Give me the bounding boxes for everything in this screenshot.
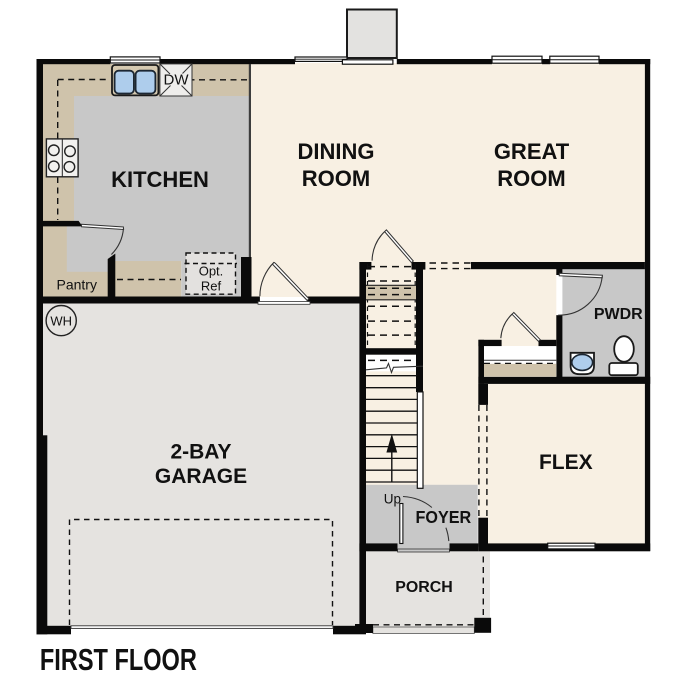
svg-text:FIRST FLOOR: FIRST FLOOR: [40, 642, 197, 677]
svg-text:PORCH: PORCH: [395, 579, 453, 596]
svg-text:FLEX: FLEX: [539, 451, 593, 474]
svg-text:FOYER: FOYER: [416, 507, 472, 527]
svg-text:PWDR: PWDR: [594, 306, 643, 323]
svg-text:Ref: Ref: [201, 279, 222, 294]
svg-text:Up: Up: [384, 491, 401, 506]
svg-text:ROOM: ROOM: [497, 166, 565, 191]
svg-text:DW: DW: [164, 71, 190, 88]
svg-text:WH: WH: [50, 313, 72, 328]
svg-text:KITCHEN: KITCHEN: [111, 167, 209, 192]
svg-text:ROOM: ROOM: [302, 166, 370, 191]
svg-text:GREAT: GREAT: [494, 139, 570, 164]
svg-text:2-BAY: 2-BAY: [170, 441, 231, 464]
svg-text:Opt.: Opt.: [199, 264, 224, 279]
svg-text:DINING: DINING: [298, 139, 375, 164]
svg-text:Pantry: Pantry: [57, 277, 97, 293]
svg-text:GARAGE: GARAGE: [155, 465, 247, 488]
